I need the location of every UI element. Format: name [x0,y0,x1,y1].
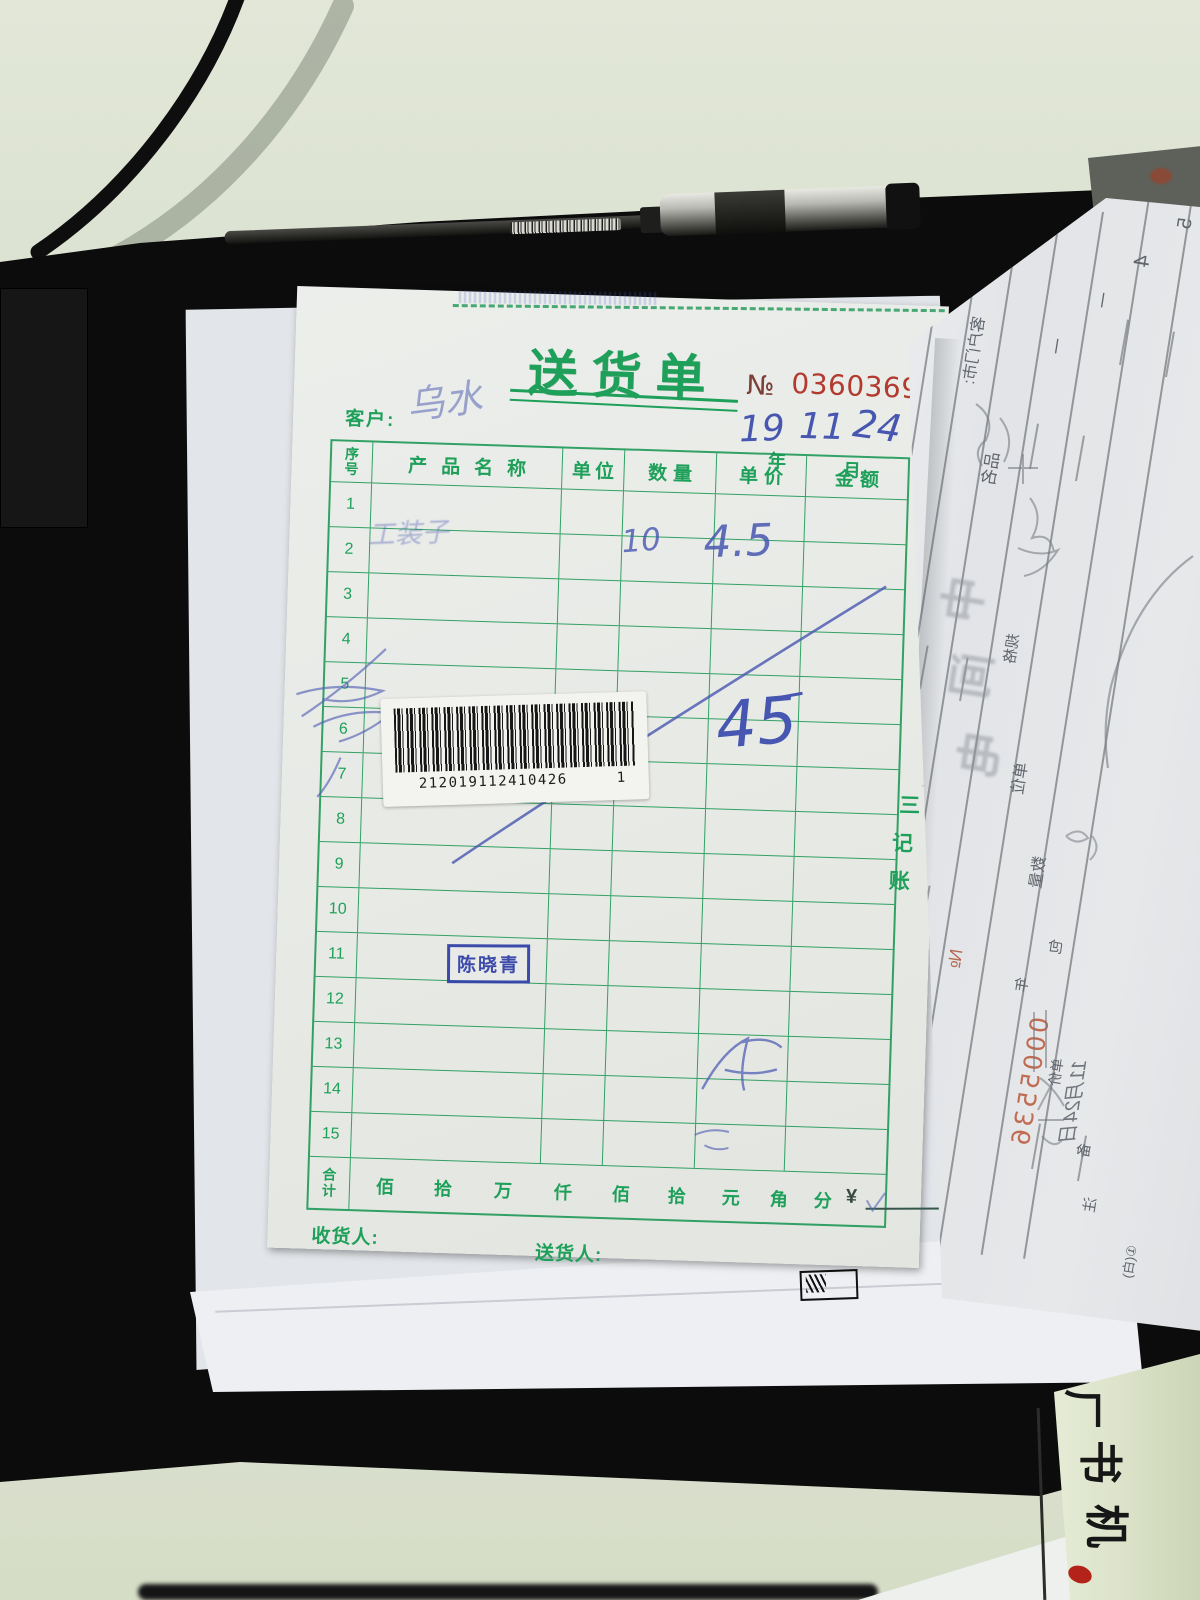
total-label-a: 合 [322,1167,336,1183]
items-table: 序 号 产品名称 单位 数量 单价 金额 1234567891011121314… [306,439,910,1228]
ghost-char: 电 [941,725,1013,781]
row-number-cell: 5 [324,662,365,707]
unit-char: 佰 [612,1180,631,1207]
photo-of-delivery-note: { "delivery_note": { "title": "送货单", "no… [0,0,1200,1600]
row-number-cell: 10 [317,887,358,932]
table-cell [619,581,712,628]
rp-note-label-a: 备 [1072,1141,1095,1159]
table-cell [788,992,891,1039]
row-number-cell: 2 [328,527,369,572]
print-fragment [799,1269,858,1301]
total-underline [866,1208,952,1210]
table-cell [702,854,793,901]
table-cell [697,1034,788,1081]
serial-number: 0360369 [791,367,920,405]
table-cell [617,626,710,673]
table-cell [367,573,558,623]
table-cell [548,849,611,895]
header-unit: 单位 [561,448,624,490]
row-number-cell: 8 [320,797,361,842]
table-cell [602,1121,695,1168]
table-cell [711,584,802,631]
table-cell [357,888,548,938]
name-stamp: 陈晓青 [447,944,530,983]
table-cell [695,1079,786,1126]
rp-qty-label: 数量 [1022,854,1051,889]
header-seq-b: 号 [344,462,358,478]
table-cell [796,722,899,769]
table-cell [694,1124,785,1171]
table-cell [701,899,792,946]
row-number-cell: 15 [310,1112,351,1157]
table-cell [785,1082,888,1129]
table-cell [804,497,907,544]
strip-char: 机 [1078,1504,1142,1548]
table-body: 123456789101112131415 [310,481,907,1174]
table-cell [709,629,800,676]
unit-char: 元 [721,1184,740,1211]
yen-sign: ¥ [846,1186,858,1209]
table-cell [557,579,620,625]
table-cell [560,489,623,535]
row-number-cell: 3 [327,572,368,617]
row-number-cell: 9 [318,842,359,887]
delivery-note-sheet: 送货单 № 0360369 客户: 乌水 年 月 日 19 11 24 序 号 … [267,286,949,1268]
total-label-b: 计 [322,1183,336,1199]
table-cell [354,978,545,1028]
header-amount: 金额 [805,456,908,499]
year-handwriting: 19 [738,408,785,451]
header-product: 产品名称 [371,442,562,488]
table-cell [351,1068,542,1118]
unit-char: 万 [494,1177,513,1204]
rp-corner-number: 4 [1128,253,1156,269]
table-cell [698,989,789,1036]
price-handwriting: 4.5 [703,515,775,569]
unit-char: 拾 [434,1175,453,1202]
unit-char: 分 [813,1187,832,1214]
row-number-cell: 4 [326,617,367,662]
row-number-cell: 12 [314,977,355,1022]
rp-product-label: 品名 [974,450,1004,487]
row-number-cell: 1 [330,482,371,527]
receiver-label: 收货人: [311,1221,379,1250]
table-cell [802,542,905,589]
rp-corner-number: 5 [1173,216,1197,231]
day-handwriting: 24 [850,401,904,451]
table-cell [607,941,700,988]
rp-dash: 一 [1089,290,1115,310]
serial-no-label: № [746,370,775,402]
customer-label: 客户: [345,404,396,433]
product-handwriting: 工装子 [367,510,449,552]
table-cell [792,857,895,904]
rp-note-label-b: 注 [1078,1195,1101,1213]
table-cell [705,764,796,811]
row-number-cell: 14 [311,1067,352,1112]
pen-cap [885,183,921,230]
table-cell [609,896,702,943]
unit-char: 仟 [554,1179,573,1206]
rp-copy-mark: ①(白) [1117,1244,1141,1280]
table-cell [603,1076,696,1123]
table-cell [794,812,897,859]
table-cell [350,1113,541,1163]
grid-seg [1029,424,1039,470]
table-cell [798,677,901,724]
row-number-cell: 11 [316,932,357,977]
grey-object-mark [1150,168,1172,184]
copy-mark: 记 [892,827,914,858]
table-cell [606,986,699,1033]
copy-mark: 账 [888,865,910,896]
unit-char: 佰 [376,1173,395,1200]
header-seq-a: 序 [345,446,359,462]
table-cell [558,534,621,580]
table-cell [791,902,894,949]
month-handwriting: 11 [798,406,845,448]
table-cell [365,618,556,668]
table-cell [784,1127,887,1174]
table-cell [801,587,904,634]
table-cell [605,1031,698,1078]
row-number-cell: 7 [321,752,362,797]
table-cell [610,851,703,898]
table-cell [547,894,610,940]
barcode-stripes [394,702,636,773]
rp-year-label: 年 [1010,975,1033,993]
torn-edge-fuzz [459,290,659,305]
customer-handwriting: 乌水 [403,366,485,430]
row-number-cell: 6 [323,707,364,752]
table-cell [545,939,608,985]
perforation-line [453,304,945,312]
unit-char: 角 [769,1185,788,1212]
laptop-seam [0,288,88,528]
qty-handwriting: 10 [620,522,662,561]
table-cell [544,984,607,1030]
strip-char: 书 [1072,1440,1136,1484]
table-cell [789,947,892,994]
strip-partial-char: 厂 [1057,1389,1115,1429]
unit-char: 拾 [667,1182,686,1209]
table-cell [612,806,705,853]
row-number-cell: 13 [313,1022,354,1067]
rp-dash: 一 [1043,336,1069,356]
table-cell [540,1119,603,1165]
barcode-sticker: 212019112410426 1 [380,691,649,807]
deliverer-label: 送货人: [535,1238,603,1267]
pen-dark-band [714,190,786,235]
rp-pack-label: 包 [1044,937,1067,955]
table-cell [787,1037,890,1084]
table-cell [353,1023,544,1073]
laptop-bottom-shadow [138,1584,878,1600]
table-cell [799,632,902,679]
table-cell [543,1029,606,1075]
table-cell [550,804,613,850]
table-cell [699,944,790,991]
header-qty: 数量 [623,450,716,493]
table-cell [541,1074,604,1120]
table-cell [795,767,898,814]
rp-customer-label: 客户门市: [955,314,989,385]
barcode-text: 212019112410426 1 [383,769,649,793]
grid-seg [1075,436,1085,482]
barcode-digits: 212019112410426 [419,772,568,792]
table-cell [555,624,618,670]
barcode-suffix: 1 [617,770,627,786]
rp-serial-label: № [944,947,968,969]
total-label: 合 计 [308,1157,350,1209]
header-seq: 序 号 [331,441,372,482]
header-price: 单价 [715,453,806,496]
table-cell [704,809,795,856]
table-cell [358,843,549,893]
